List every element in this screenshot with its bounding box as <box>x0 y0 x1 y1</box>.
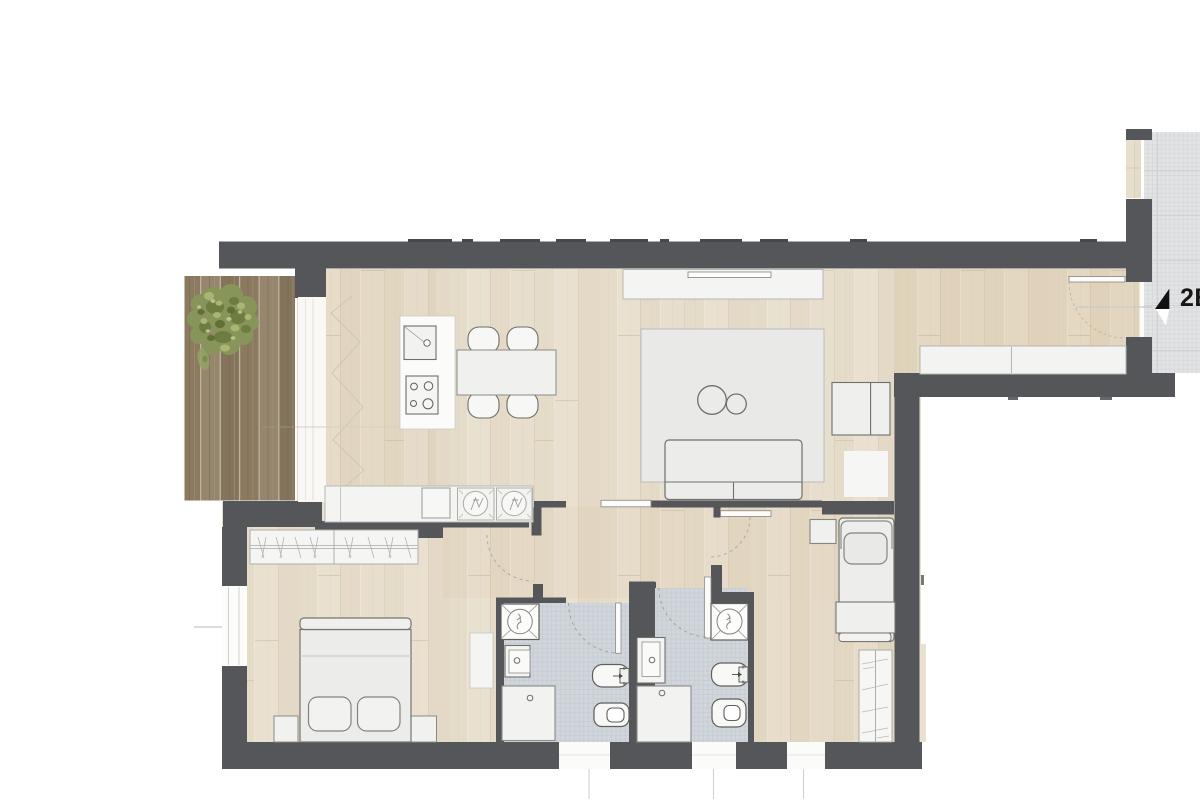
svg-text:2B: 2B <box>1180 284 1200 312</box>
